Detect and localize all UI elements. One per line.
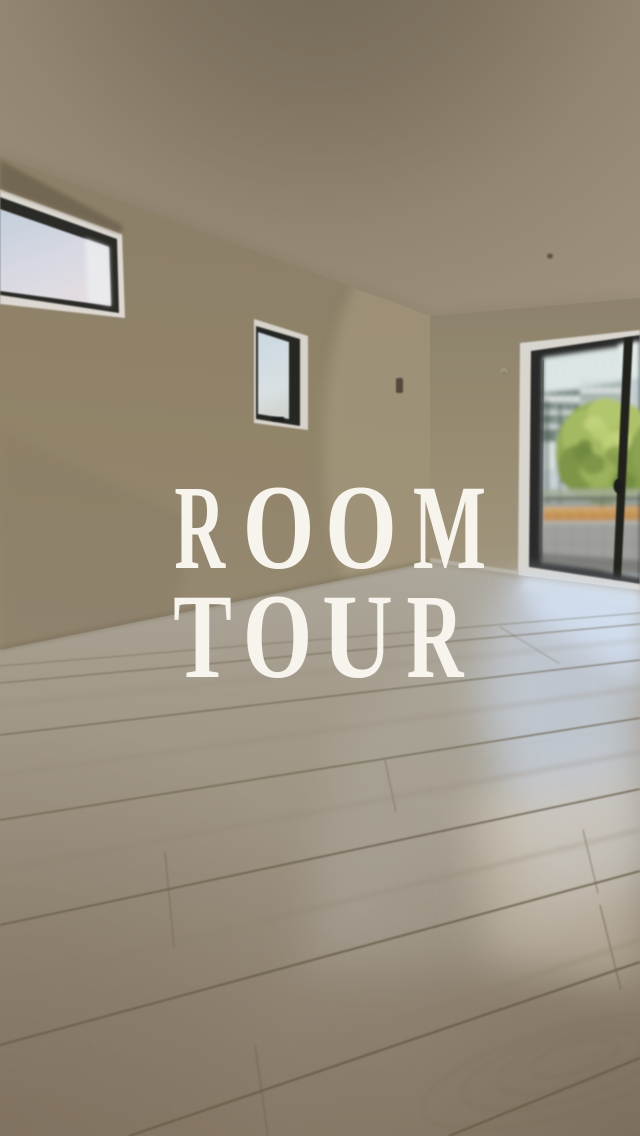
svg-text:R: R xyxy=(407,570,465,704)
svg-text:T: T xyxy=(173,570,232,704)
svg-text:U: U xyxy=(322,569,393,703)
svg-text:O: O xyxy=(243,569,312,703)
